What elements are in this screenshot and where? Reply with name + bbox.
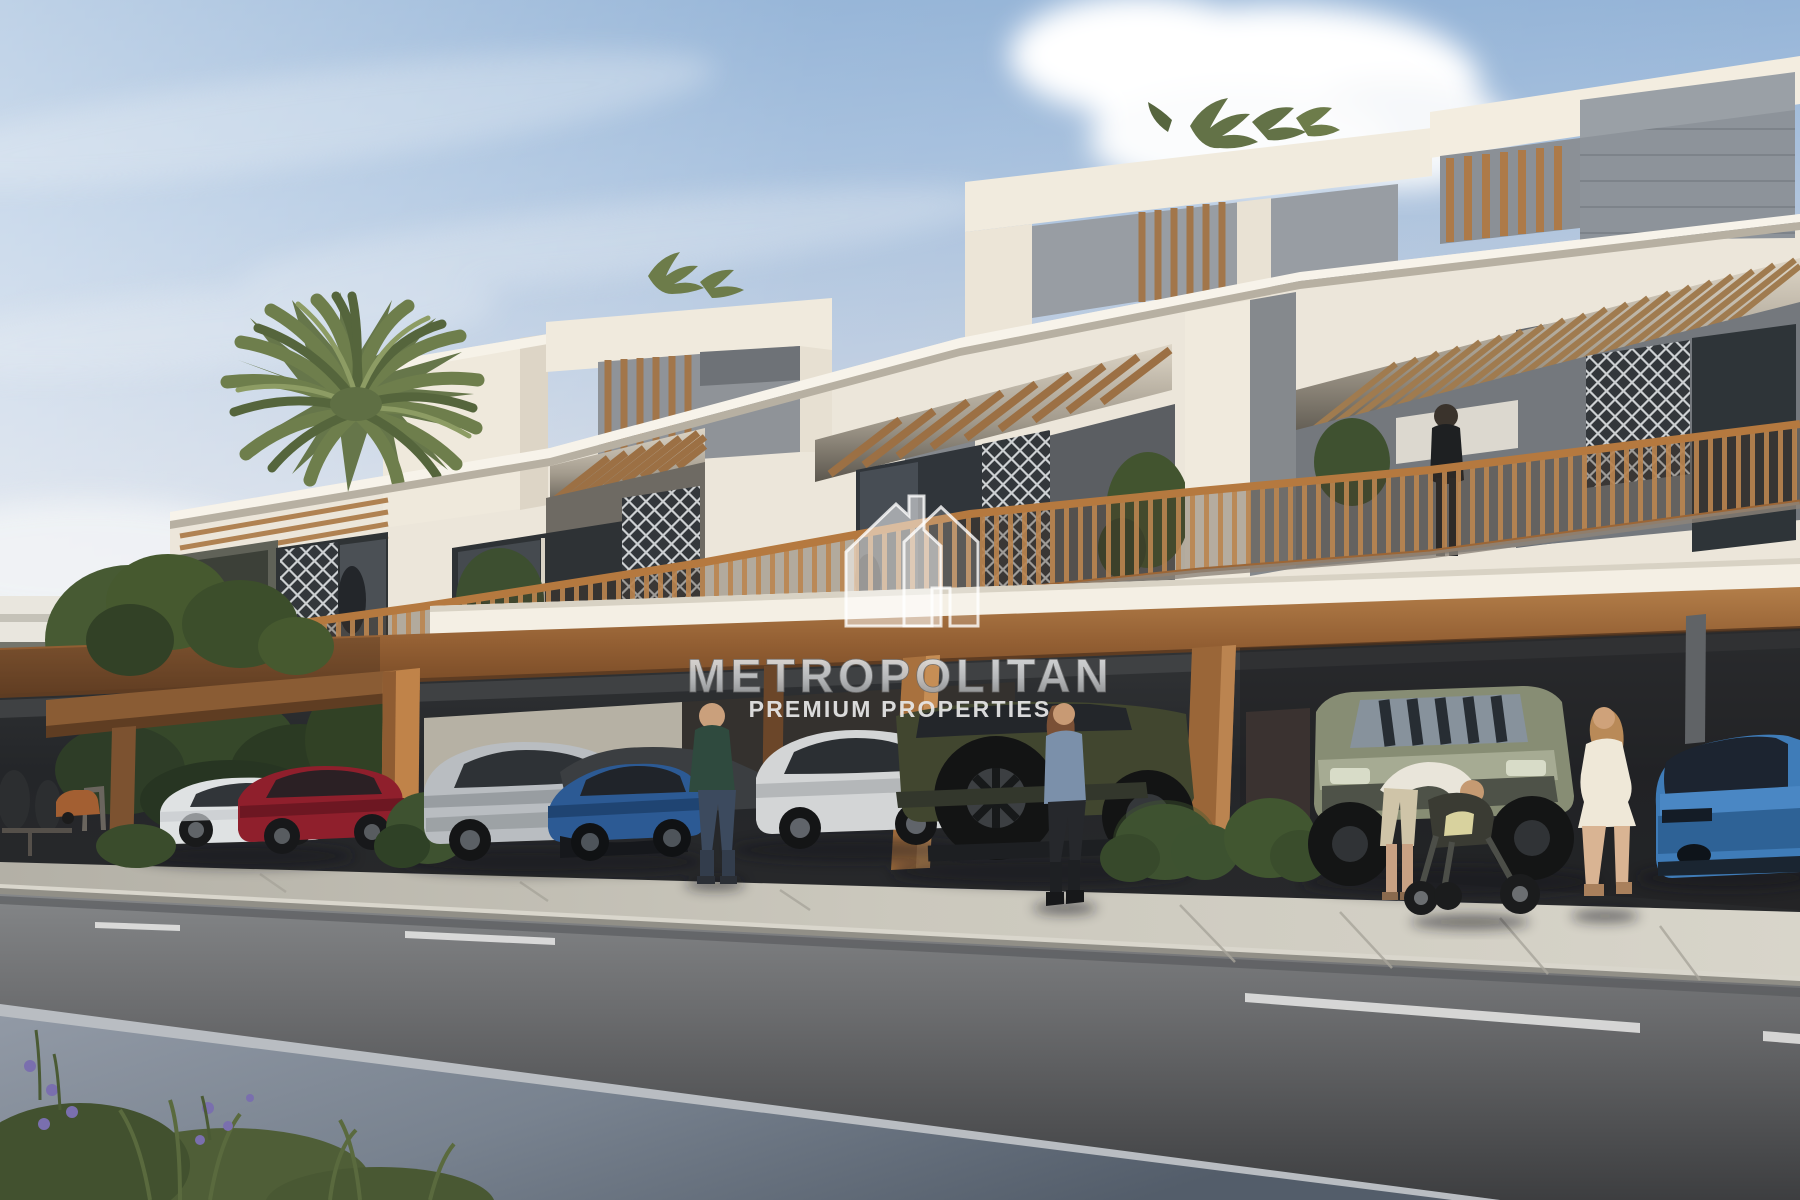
svg-text:PREMIUM PROPERTIES: PREMIUM PROPERTIES <box>749 696 1052 722</box>
svg-text:METROPOLITAN: METROPOLITAN <box>687 649 1114 702</box>
